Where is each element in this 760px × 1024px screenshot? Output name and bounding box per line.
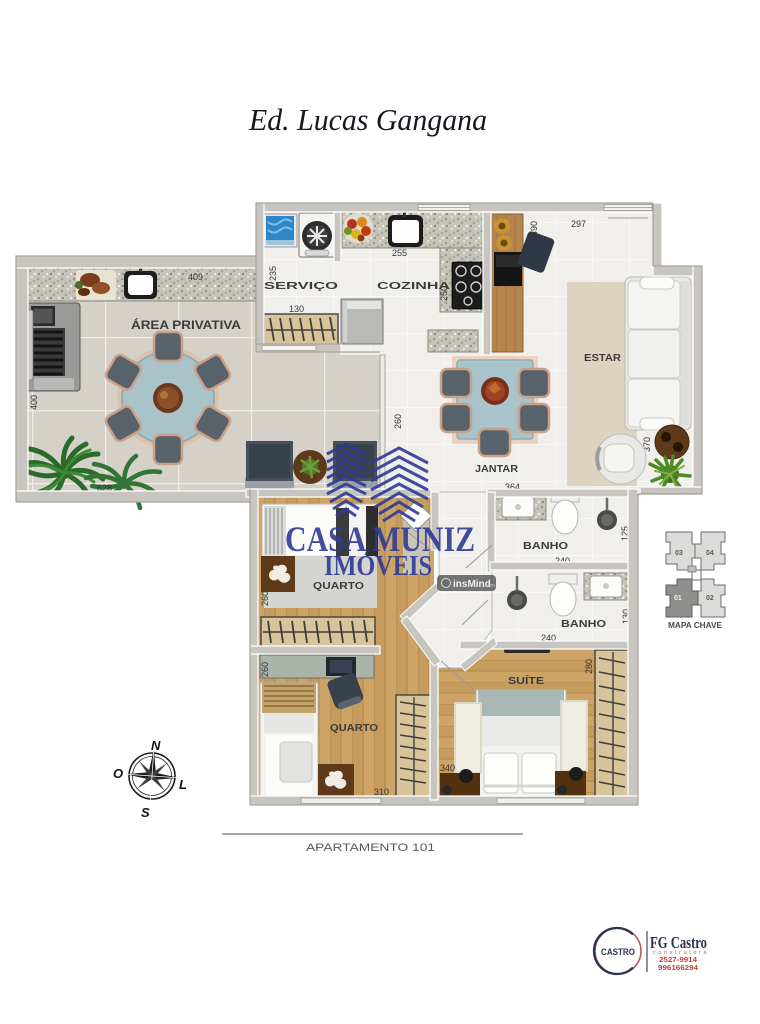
svg-text:ESTAR: ESTAR — [584, 352, 621, 364]
svg-text:490: 490 — [529, 221, 539, 236]
svg-text:130: 130 — [289, 304, 304, 314]
svg-text:400: 400 — [29, 395, 39, 410]
svg-text:BANHO: BANHO — [561, 618, 606, 630]
svg-text:ÁREA PRIVATIVA: ÁREA PRIVATIVA — [131, 317, 241, 332]
svg-text:04: 04 — [706, 550, 714, 557]
svg-text:250: 250 — [439, 286, 449, 301]
svg-text:255: 255 — [392, 248, 407, 258]
svg-text:260: 260 — [393, 414, 403, 429]
svg-text:996166294: 996166294 — [658, 963, 699, 972]
svg-text:CASTRO: CASTRO — [601, 947, 635, 958]
svg-text:BANHO: BANHO — [523, 540, 568, 552]
svg-text:MAPA CHAVE: MAPA CHAVE — [668, 621, 723, 630]
svg-text:.com: .com — [484, 583, 495, 589]
svg-text:JANTAR: JANTAR — [475, 463, 518, 475]
svg-text:L: L — [179, 777, 187, 792]
svg-text:O: O — [113, 766, 123, 781]
svg-text:260: 260 — [260, 662, 270, 677]
svg-text:N: N — [151, 738, 161, 753]
svg-text:IMÓVEIS: IMÓVEIS — [324, 549, 432, 582]
svg-text:235: 235 — [268, 266, 278, 281]
svg-text:Ed. Lucas Gangana: Ed. Lucas Gangana — [248, 102, 487, 137]
svg-text:03: 03 — [675, 550, 683, 557]
svg-text:SUÍTE: SUÍTE — [508, 674, 544, 687]
svg-text:260: 260 — [260, 591, 270, 606]
svg-text:280: 280 — [584, 659, 594, 674]
svg-text:APARTAMENTO 101: APARTAMENTO 101 — [306, 842, 435, 854]
svg-text:01: 01 — [674, 595, 682, 602]
svg-text:QUARTO: QUARTO — [330, 722, 378, 734]
svg-text:02: 02 — [706, 595, 714, 602]
svg-text:297: 297 — [571, 219, 586, 229]
svg-text:409: 409 — [188, 272, 203, 282]
svg-text:340: 340 — [440, 763, 455, 773]
svg-text:S: S — [141, 805, 150, 820]
